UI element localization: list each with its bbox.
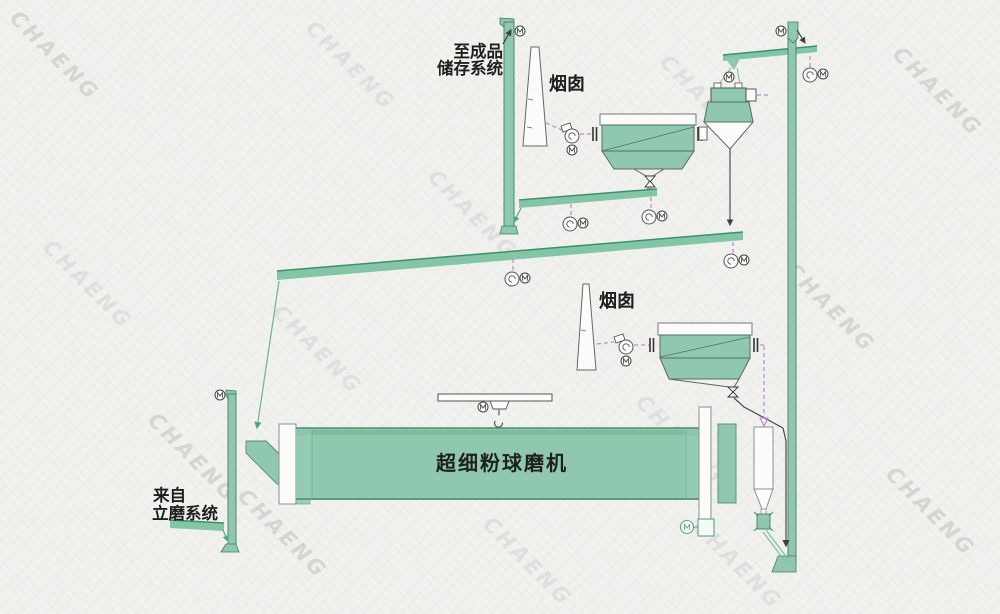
mill-drive	[681, 519, 715, 536]
motor-icon	[621, 356, 631, 366]
airlock-valve-icon	[645, 176, 655, 187]
flange-icon	[650, 338, 654, 352]
air-slide-blower-top	[803, 56, 828, 82]
fan-icon	[803, 68, 817, 82]
mill-label: 超细粉球磨机	[435, 451, 568, 475]
to-storage-label-line1: 至成品	[454, 41, 504, 61]
chimney-1-label: 烟囱	[549, 73, 585, 95]
fan-icon	[563, 217, 577, 231]
gearbox	[698, 519, 714, 536]
motor-icon	[520, 273, 530, 283]
to-elevator-arrow	[223, 530, 228, 541]
from-mill-label-line1: 来自	[152, 485, 186, 505]
motor-icon	[578, 218, 588, 228]
fan-icon	[724, 254, 738, 268]
diagram-canvas: 至成品 储存系统 烟囱	[0, 0, 1000, 600]
duct-to-chimney-2	[597, 342, 614, 344]
motor-icon	[515, 26, 525, 36]
chimney-2	[577, 284, 596, 370]
fines-air-slide	[514, 189, 657, 222]
circulation-bucket-elevator	[772, 22, 805, 572]
mill-inlet-trunnion	[279, 424, 296, 504]
chimney-1	[523, 47, 547, 146]
vent-duct-arrow	[760, 418, 768, 426]
maintenance-hoist	[438, 394, 552, 427]
flange-icon	[754, 338, 758, 352]
motor-icon	[724, 72, 734, 82]
to-storage-label-line2: 储存系统	[437, 58, 504, 78]
hook-icon	[495, 410, 503, 427]
mill-feed-line	[257, 281, 279, 428]
fan-icon	[505, 272, 519, 286]
process-flow-diagram: { "labels": { "to_storage_line1": "至成品",…	[0, 0, 1000, 600]
hoist-beam	[438, 394, 552, 401]
discharge-hopper	[754, 427, 773, 489]
air-slide-blower-a	[505, 259, 530, 286]
motor-icon	[739, 255, 749, 265]
bag-filter-1	[593, 114, 702, 194]
bearing-pedestal	[718, 424, 736, 503]
air-slide-blower-c	[563, 204, 588, 231]
powder-separator	[699, 46, 817, 225]
duct-to-chimney-1	[546, 123, 562, 130]
fan-icon	[619, 340, 633, 354]
motor-icon	[478, 402, 488, 412]
incoming-conveyor	[170, 520, 228, 541]
fan-icon	[642, 210, 656, 224]
motor-icon	[776, 26, 786, 36]
flange-icon	[593, 127, 597, 141]
fan-icon	[565, 129, 579, 143]
chimney-2-label: 烟囱	[599, 290, 635, 312]
from-mill-label-line2: 立磨系统	[152, 503, 219, 523]
hoist-trolley	[490, 401, 509, 409]
slide-to-elevator-arrow	[514, 208, 521, 222]
airlock-valve-icon	[728, 387, 738, 397]
motor-icon	[818, 69, 828, 79]
motor-icon	[215, 390, 225, 400]
air-slide-blower-d	[642, 197, 667, 224]
exhaust-fan-2	[597, 334, 649, 366]
motor-icon	[567, 145, 577, 155]
air-slide-blower-b	[724, 242, 749, 268]
discharge-chute	[766, 530, 788, 559]
exhaust-fan-1	[546, 123, 592, 155]
motor-icon	[657, 211, 667, 221]
mill-outlet-trunnion	[699, 407, 711, 520]
rotary-feeder	[754, 512, 773, 531]
